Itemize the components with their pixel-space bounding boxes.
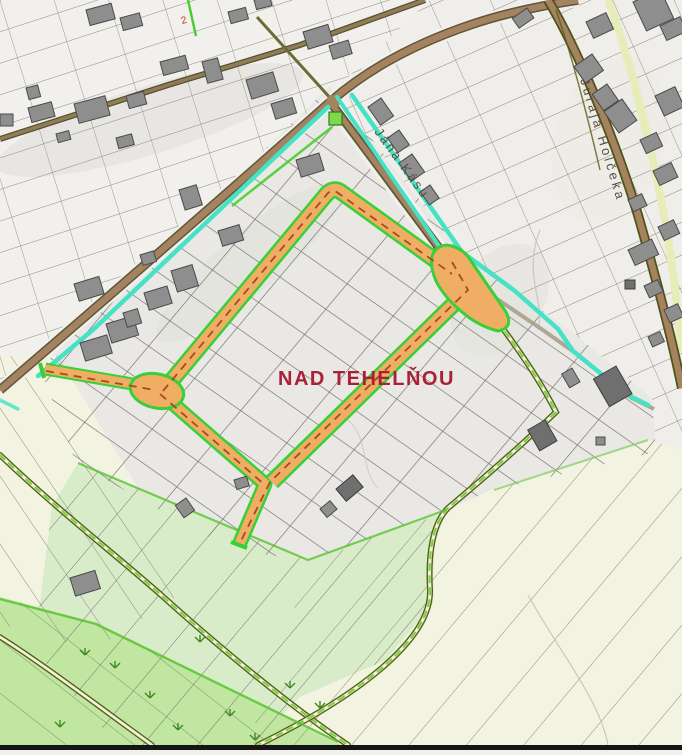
map-canvas[interactable]: NAD TEHELŇOU Jána Kásu Juraja Holčeka 2 xyxy=(0,0,682,755)
area-label: NAD TEHELŇOU xyxy=(278,366,455,390)
bottom-border-line xyxy=(0,745,682,750)
small-green-plot xyxy=(329,112,342,125)
map-viewport[interactable]: NAD TEHELŇOU Jána Kásu Juraja Holčeka 2 xyxy=(0,0,682,755)
